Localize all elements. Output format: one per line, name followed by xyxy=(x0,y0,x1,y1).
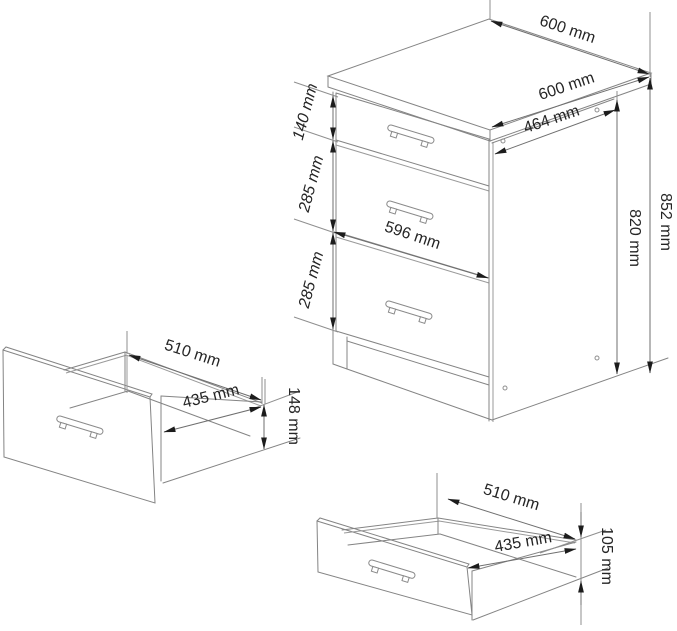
large-drawer-drawing: 510 mm 435 mm 148 mm xyxy=(3,331,302,503)
dim-cabinet-front-width: 596 mm xyxy=(382,219,442,253)
cam-hole xyxy=(503,386,507,390)
dim-cabinet-total-height: 852 mm xyxy=(657,193,674,251)
cabinet-extension-lines xyxy=(294,0,650,332)
dim-bottom-drawer-height: 285 mm xyxy=(296,250,328,311)
dim-cabinet-body-height: 820 mm xyxy=(626,209,643,267)
cam-hole xyxy=(595,356,599,360)
dim-middle-drawer-height: 285 mm xyxy=(296,154,328,215)
dim-cabinet-top-width: 600 mm xyxy=(537,13,597,47)
dim-small-drawer-height: 105 mm xyxy=(598,527,615,585)
cabinet-body xyxy=(333,92,668,422)
cabinet-worktop xyxy=(328,19,651,141)
dim-cabinet-top-depth: 600 mm xyxy=(536,70,596,104)
dim-large-drawer-depth: 510 mm xyxy=(162,337,222,371)
cabinet-drawing: 600 mm 600 mm 464 mm 596 mm 140 mm 285 m… xyxy=(290,0,674,422)
cam-hole xyxy=(595,108,599,112)
dimension-diagram-page: 600 mm 600 mm 464 mm 596 mm 140 mm 285 m… xyxy=(0,0,677,631)
drawer-handle xyxy=(386,124,435,149)
dim-top-drawer-height: 140 mm xyxy=(290,82,321,142)
dim-small-drawer-depth: 510 mm xyxy=(481,481,541,514)
drawer-handle xyxy=(384,300,433,325)
cabinet-dimension-lines xyxy=(333,21,650,374)
cam-hole xyxy=(501,139,505,143)
dim-large-drawer-width: 435 mm xyxy=(181,381,241,411)
small-drawer-drawing: 510 mm 435 mm 105 mm xyxy=(317,473,615,625)
furniture-dimension-diagram: 600 mm 600 mm 464 mm 596 mm 140 mm 285 m… xyxy=(0,0,677,631)
dim-large-drawer-height: 148 mm xyxy=(285,387,302,445)
